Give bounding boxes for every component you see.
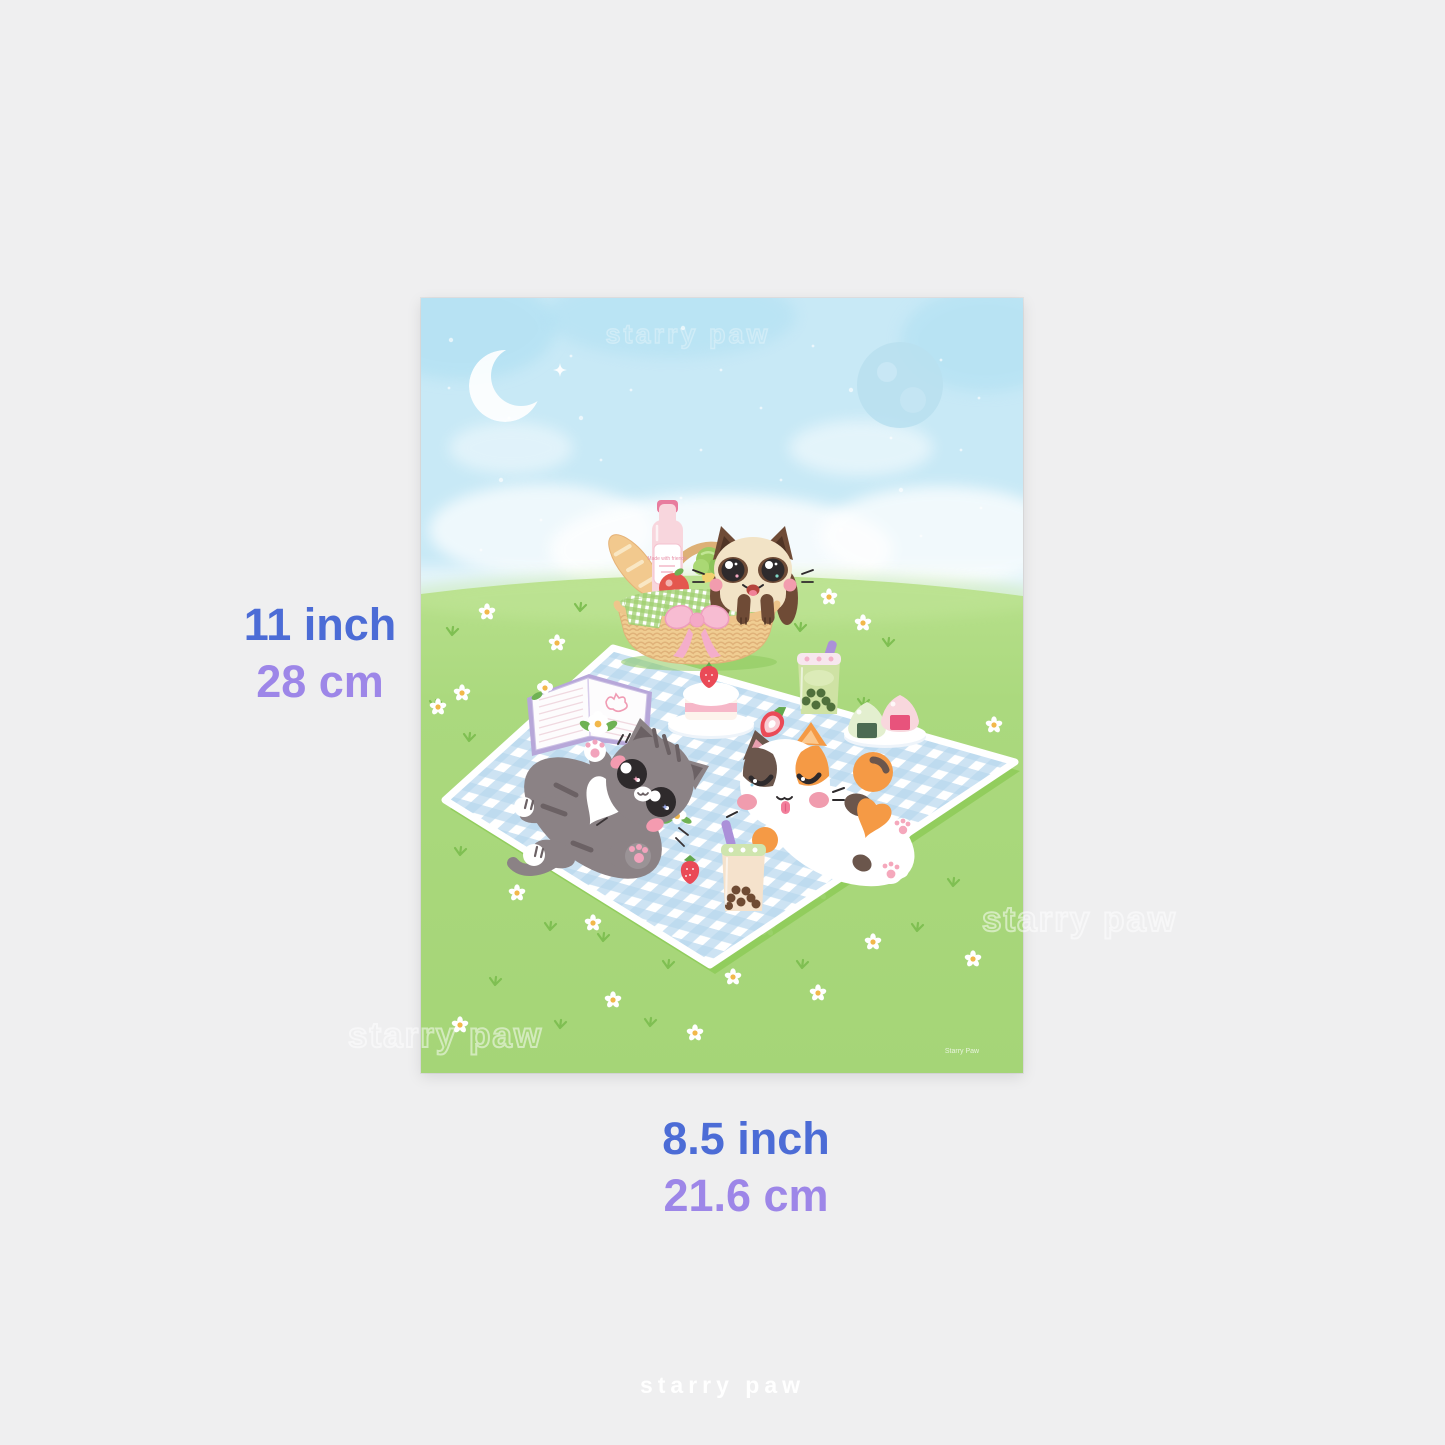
bottle-label-text: Made with friends	[647, 556, 687, 562]
height-dimension-label: 11 inch 28 cm	[195, 596, 445, 710]
watermark-sky: starry paw	[605, 319, 770, 349]
page-background: 11 inch 28 cm	[0, 0, 1445, 1445]
watermark-right: starry paw	[982, 900, 1177, 940]
width-cm-text: 21.6 cm	[596, 1167, 896, 1224]
height-inch-text: 11 inch	[195, 596, 445, 653]
width-dimension-label: 8.5 inch 21.6 cm	[596, 1110, 896, 1224]
cat-paw-pads-bottom	[625, 843, 651, 869]
cat-hind-paw-2	[879, 860, 903, 884]
pale-moon-icon	[857, 342, 943, 428]
cat-picnic-illustration: starry paw	[421, 298, 1023, 1073]
watermark-footer: starry paw	[640, 1372, 805, 1399]
height-cm-text: 28 cm	[195, 653, 445, 710]
artist-signature: Starry Paw	[945, 1048, 980, 1055]
cat-hind-paw	[891, 818, 913, 840]
art-print-poster: starry paw	[421, 298, 1023, 1073]
watermark-bottom-left: starry paw	[348, 1016, 543, 1056]
width-inch-text: 8.5 inch	[596, 1110, 896, 1167]
